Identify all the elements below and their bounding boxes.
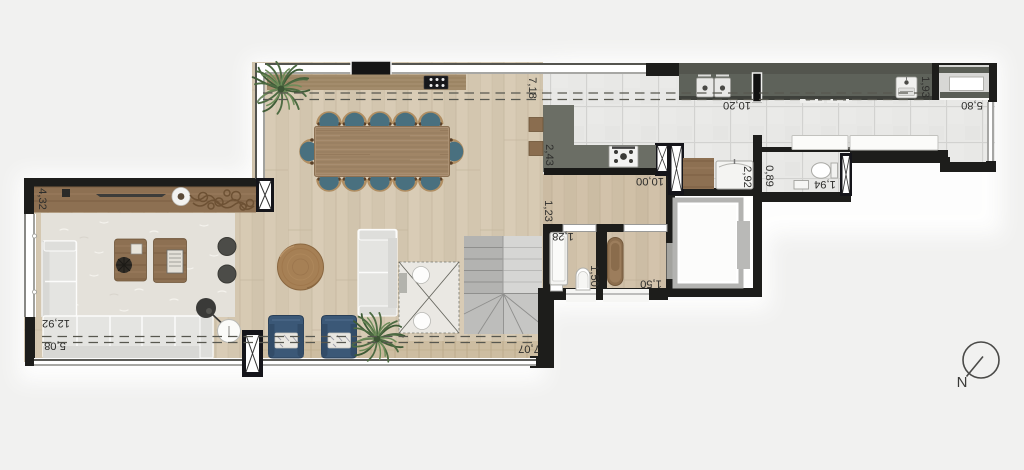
svg-text:1,50: 1,50 (588, 265, 600, 287)
svg-text:7,18: 7,18 (526, 77, 538, 99)
svg-text:10,00: 10,00 (636, 175, 664, 187)
svg-text:7,07: 7,07 (518, 343, 540, 355)
svg-text:4,32: 4,32 (36, 188, 48, 210)
svg-text:1,23: 1,23 (542, 200, 554, 222)
svg-text:1,94: 1,94 (814, 178, 836, 190)
svg-text:5,08: 5,08 (44, 340, 66, 352)
svg-text:5,80: 5,80 (961, 99, 983, 111)
svg-text:2,43: 2,43 (543, 144, 555, 166)
svg-text:1,28: 1,28 (552, 230, 574, 242)
svg-text:1,93: 1,93 (919, 76, 931, 98)
svg-text:10,20: 10,20 (723, 99, 751, 111)
svg-text:N: N (957, 374, 968, 391)
svg-text:2,92: 2,92 (741, 166, 753, 188)
svg-text:0,89: 0,89 (763, 165, 775, 187)
svg-text:1,50: 1,50 (640, 278, 662, 290)
svg-text:12,92: 12,92 (42, 317, 70, 329)
